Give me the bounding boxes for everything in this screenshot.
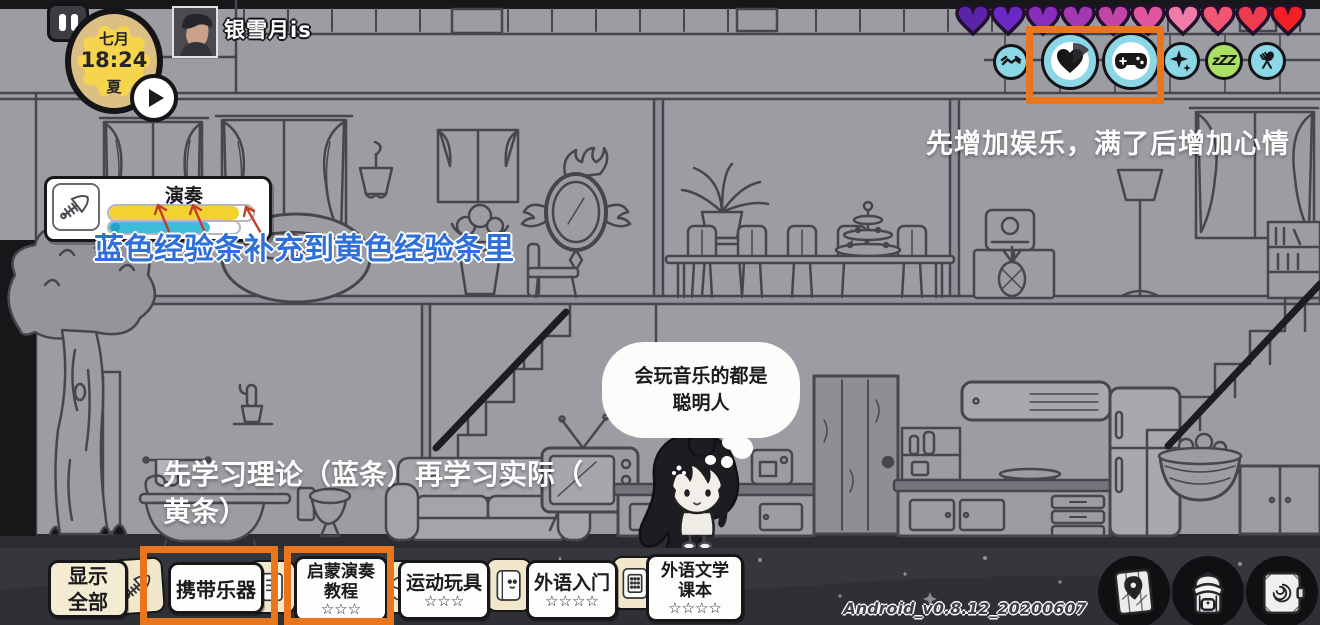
bookshelf[interactable] xyxy=(1268,222,1320,298)
journal-button[interactable] xyxy=(1246,556,1318,625)
game-screen: 七月 18:24 夏 银雪月is zZZ xyxy=(0,0,1320,625)
clock-time: 18:24 xyxy=(64,48,164,72)
wall-shelf[interactable] xyxy=(902,428,960,480)
journal-icon xyxy=(1257,567,1307,617)
item-label: 外语文学 课本 xyxy=(661,561,729,601)
cutlery-icon xyxy=(1255,49,1279,73)
speech-text: 会玩音乐的都是 聪明人 xyxy=(634,363,767,417)
hint-xp-bars: 蓝色经验条补充到黄色经验条里 xyxy=(94,224,514,268)
wooden-door[interactable] xyxy=(814,376,898,534)
item-stars: ☆☆☆☆ xyxy=(668,601,722,616)
sleep-status-button[interactable]: zZZ xyxy=(1205,42,1243,80)
heart-icon xyxy=(1165,4,1201,38)
zzz-icon: zZZ xyxy=(1212,54,1235,69)
tutorial-highlight-instrument xyxy=(140,546,278,625)
show-all-label: 显示 全部 xyxy=(68,563,108,615)
heart-icon xyxy=(990,4,1026,38)
hint-entertainment: 先增加娱乐，满了后增加心情 xyxy=(926,122,1290,161)
tutorial-highlight-tutorial-book xyxy=(284,546,394,625)
chair[interactable] xyxy=(528,244,578,297)
heart-icon xyxy=(1200,4,1236,38)
hygiene-status-button[interactable] xyxy=(1162,42,1200,80)
coffee-machine[interactable] xyxy=(752,450,792,484)
food-status-button[interactable] xyxy=(1248,42,1286,80)
speech-bubble: 会玩音乐的都是 聪明人 xyxy=(602,342,800,438)
item-stars: ☆☆☆ xyxy=(424,594,464,609)
kitchen-counter-right[interactable] xyxy=(894,469,1114,536)
play-speed-button[interactable] xyxy=(130,74,178,122)
heart-icon xyxy=(955,4,991,38)
trumpet-icon xyxy=(52,183,100,231)
hint-learning-order: 先学习理论（蓝条）再学习实际（ 黄条） xyxy=(163,456,593,530)
item-button-language-intro[interactable]: 外语入门 ☆☆☆☆ xyxy=(526,560,618,620)
cactus-pot[interactable] xyxy=(234,385,272,424)
backpack-button[interactable] xyxy=(1172,556,1244,625)
social-status-button[interactable] xyxy=(993,44,1029,80)
version-text: Android_v0.8.12_20200607 xyxy=(820,599,1110,618)
item-button-toy[interactable]: 运动玩具 ☆☆☆ xyxy=(398,560,490,620)
tree xyxy=(0,223,155,536)
show-all-button[interactable]: 显示 全部 xyxy=(48,560,128,618)
sparkle-icon xyxy=(1169,49,1193,73)
wall-lamp[interactable] xyxy=(360,142,392,198)
item-label: 运动玩具 xyxy=(406,572,482,594)
item-button-literature[interactable]: 外语文学 课本 ☆☆☆☆ xyxy=(646,554,744,622)
floor-lamp[interactable] xyxy=(1118,170,1162,296)
item-stars: ☆☆☆☆ xyxy=(545,594,599,609)
play-icon xyxy=(149,89,164,107)
clock-month: 七月 xyxy=(64,28,164,49)
handshake-icon xyxy=(1000,51,1022,73)
map-icon xyxy=(1109,567,1159,617)
air-conditioner[interactable] xyxy=(962,382,1110,420)
small-window[interactable] xyxy=(438,130,518,202)
item-label: 外语入门 xyxy=(534,572,610,594)
tutorial-highlight-status xyxy=(1026,26,1164,104)
backpack-icon xyxy=(1183,567,1233,617)
map-button[interactable] xyxy=(1098,556,1170,625)
avatar[interactable] xyxy=(172,6,218,58)
heart-icon xyxy=(1235,4,1271,38)
player-name: 银雪月is xyxy=(224,14,312,44)
heart-icon xyxy=(1270,4,1306,38)
